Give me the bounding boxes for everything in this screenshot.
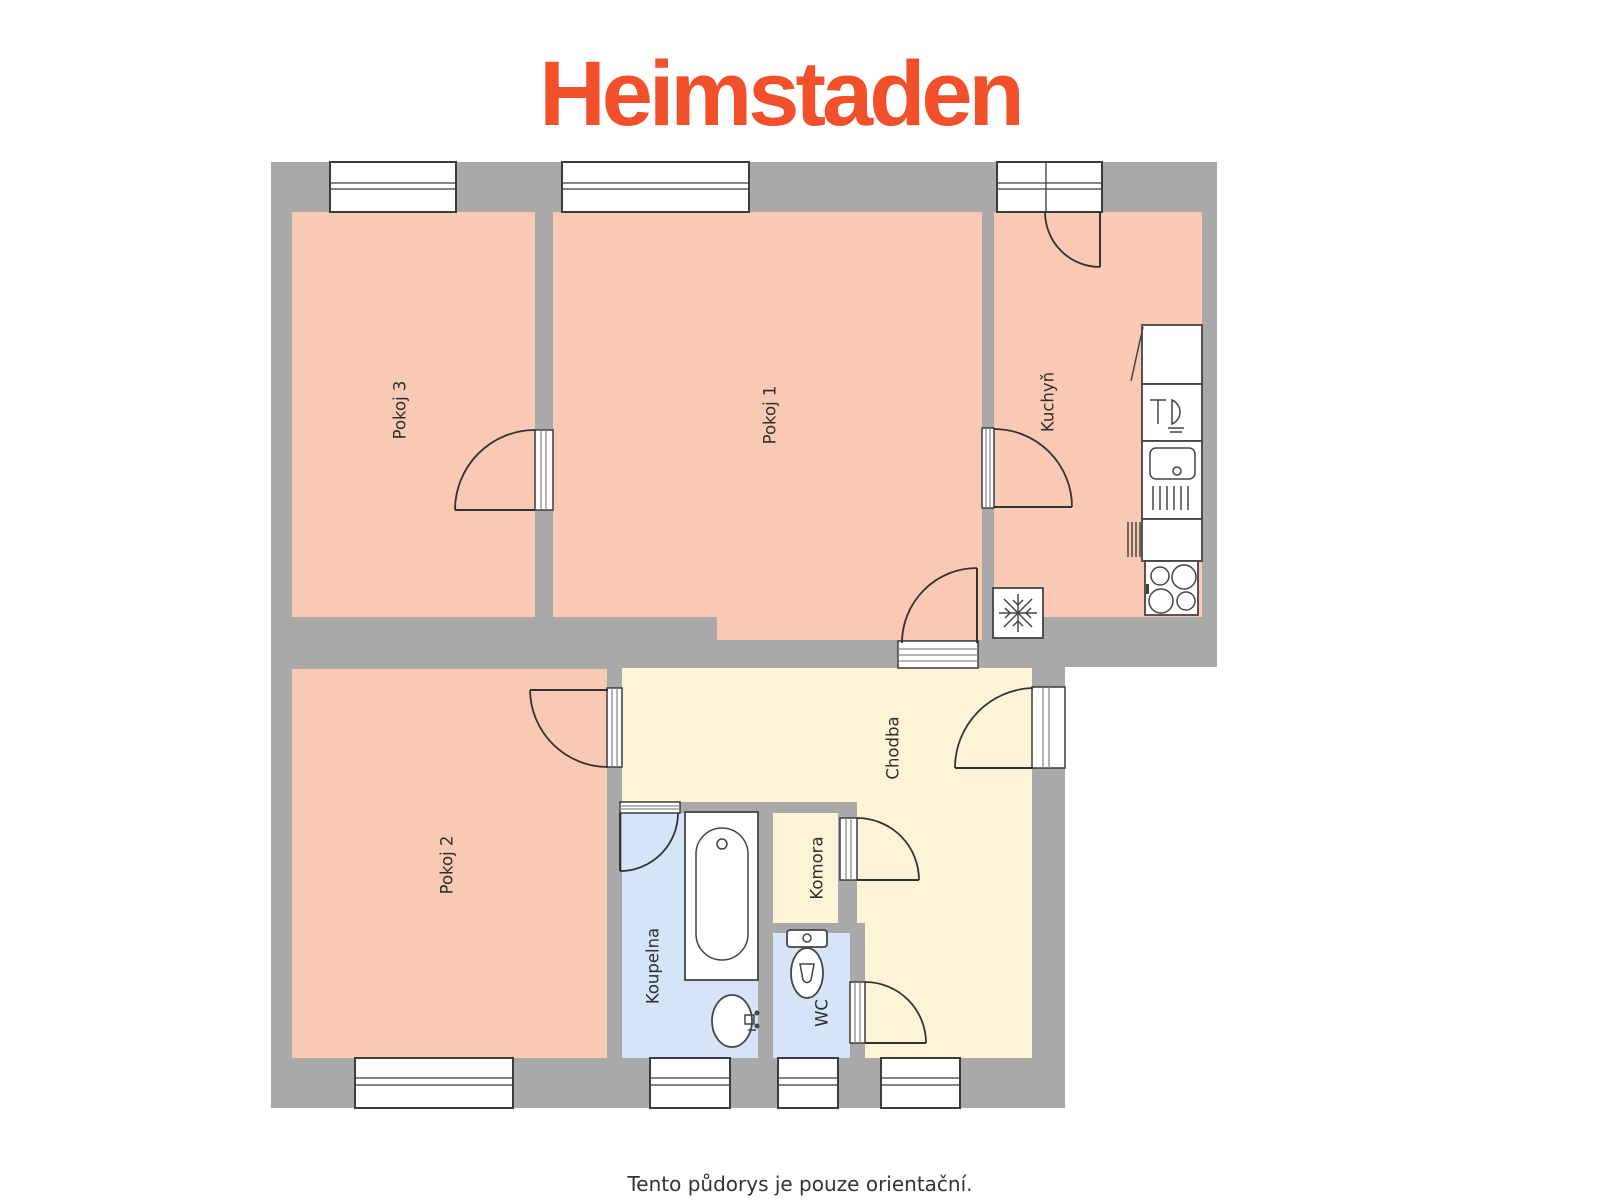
label-komora: Komora	[808, 836, 827, 899]
door-sill-kuchyn	[982, 428, 994, 508]
label-pokoj3: Pokoj 3	[391, 381, 410, 440]
kitchen-counter-icon	[1142, 519, 1202, 561]
window-wc-bottom	[778, 1058, 838, 1108]
window-chodba-bottom	[881, 1058, 960, 1108]
window-koupelna-bottom	[650, 1058, 730, 1108]
window-pokoj1-top	[562, 162, 749, 212]
door-sill-pokoj2	[607, 688, 622, 767]
door-sill-entrance	[1032, 687, 1065, 768]
floorplan-drawing: Pokoj 3 Pokoj 1 Kuchyň Pokoj 2 Chodba Ko…	[0, 0, 1600, 1200]
window-balcony-door-kuchyn	[997, 162, 1102, 212]
window-pokoj3-top	[330, 162, 456, 212]
door-sill-wc	[850, 982, 865, 1043]
label-wc: WC	[813, 999, 832, 1027]
label-kuchyn: Kuchyň	[1039, 372, 1058, 432]
dishwasher-icon	[1142, 384, 1202, 441]
label-chodba: Chodba	[884, 716, 903, 779]
label-koupelna: Koupelna	[644, 928, 663, 1004]
floor-pokoj3	[292, 212, 535, 617]
stove-burners-icon	[1145, 561, 1198, 615]
floorplan-page: Heimstaden	[0, 0, 1600, 1200]
door-sill-komora	[840, 818, 857, 880]
freezer-snowflake-icon	[993, 588, 1043, 638]
wall-pokoj1-kuchyn	[982, 212, 994, 617]
wall-pokoj3-pokoj1	[535, 212, 553, 617]
bathtub-icon	[685, 812, 758, 980]
door-sill-pokoj1-chodba	[898, 641, 978, 668]
label-pokoj1: Pokoj 1	[761, 386, 780, 445]
window-pokoj2-bottom	[355, 1058, 513, 1108]
kitchen-sink-icon	[1142, 441, 1202, 519]
kitchen-cabinet-icon	[1131, 325, 1202, 384]
door-sill-koupelna	[620, 802, 680, 813]
label-pokoj2: Pokoj 2	[438, 836, 457, 895]
door-sill-pokoj3	[535, 430, 553, 510]
disclaimer-text: Tento půdorys je pouze orientační.	[0, 1172, 1600, 1196]
